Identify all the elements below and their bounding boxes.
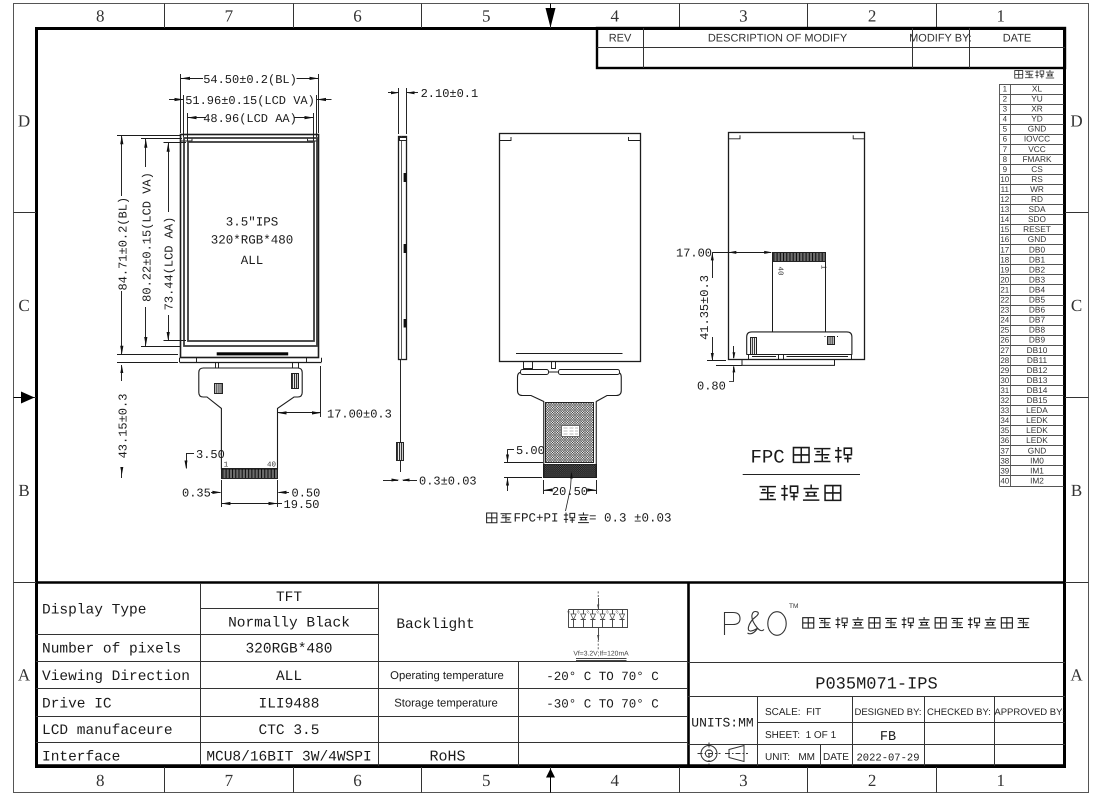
svg-text:Backlight: Backlight [396,617,474,633]
svg-text:21: 21 [1000,285,1009,294]
svg-text:15: 15 [1000,225,1009,234]
svg-text:IM2: IM2 [1030,475,1044,485]
svg-text:UNITS:MM: UNITS:MM [691,716,753,731]
svg-text:2022-07-29: 2022-07-29 [856,753,919,765]
svg-text:1: 1 [996,7,1005,26]
svg-text:-20° C TO 70° C: -20° C TO 70° C [546,670,659,684]
svg-text:17: 17 [1000,245,1009,254]
svg-text:IOVCC: IOVCC [1024,134,1050,144]
svg-text:320*RGB*480: 320*RGB*480 [211,234,294,248]
svg-text:33: 33 [1000,406,1009,415]
svg-text:GND: GND [1028,445,1046,455]
svg-text:GND: GND [1028,234,1046,244]
svg-text:19.50: 19.50 [284,498,320,512]
svg-text:Drive IC: Drive IC [42,697,112,713]
svg-text:DB0: DB0 [1029,244,1046,254]
svg-text:3: 3 [739,7,748,26]
svg-text:24: 24 [1000,316,1009,325]
svg-text:11: 11 [1001,185,1010,194]
svg-text:LCD manufaceure: LCD manufaceure [42,723,173,739]
svg-text:26: 26 [1000,336,1009,345]
svg-text:13: 13 [1000,205,1009,214]
svg-text:320RGB*480: 320RGB*480 [245,642,332,658]
svg-text:39: 39 [1000,466,1009,475]
svg-text:40: 40 [1000,476,1009,485]
svg-text:4: 4 [611,7,620,26]
svg-text:18: 18 [1000,255,1009,264]
svg-text:40: 40 [267,461,277,470]
svg-text:CS: CS [1031,164,1043,174]
svg-text:6: 6 [353,7,362,26]
svg-text:ALL: ALL [276,669,302,685]
svg-text:Viewing Direction: Viewing Direction [42,669,190,685]
svg-text:D: D [18,111,30,130]
svg-text:RD: RD [1031,194,1043,204]
svg-text:DESCRIPTION OF MODIFY: DESCRIPTION OF MODIFY [708,33,848,45]
svg-text:43.15±0.3: 43.15±0.3 [116,394,130,459]
svg-text:DB10: DB10 [1027,345,1048,355]
svg-text:16: 16 [1000,235,1009,244]
svg-text:REV: REV [609,33,632,45]
svg-text:Operating temperature: Operating temperature [390,670,504,682]
svg-text:XL: XL [1032,83,1043,93]
svg-text:6: 6 [1003,135,1008,144]
svg-text:MCU8/16BIT 3W/4WSPI: MCU8/16BIT 3W/4WSPI [206,750,371,766]
svg-text:4: 4 [1003,115,1008,124]
svg-text:41.35±0.3: 41.35±0.3 [698,275,712,340]
svg-text:9: 9 [1003,165,1008,174]
svg-text:A: A [1070,666,1083,685]
svg-text:DB5: DB5 [1029,295,1046,305]
svg-text:C: C [18,296,29,315]
svg-text:LEDA: LEDA [1026,405,1048,415]
svg-text:2: 2 [868,7,877,26]
svg-text:37: 37 [1000,446,1009,455]
svg-text:4: 4 [611,771,620,790]
svg-text:Display Type: Display Type [42,603,146,619]
svg-text:SCALE: FIT: SCALE: FIT [765,707,821,718]
svg-text:3: 3 [1003,105,1008,114]
svg-text:8: 8 [1003,155,1008,164]
svg-text:Storage temperature: Storage temperature [394,698,498,710]
svg-text:ALL: ALL [241,254,264,268]
svg-text:CTC 3.5: CTC 3.5 [259,723,320,739]
svg-text:7: 7 [1003,145,1008,154]
svg-text:Vf=3.2V;If=120mA: Vf=3.2V;If=120mA [573,650,629,657]
svg-text:2: 2 [868,771,877,790]
svg-text:DB6: DB6 [1029,305,1046,315]
svg-text:34: 34 [1000,416,1009,425]
svg-text:FB: FB [880,730,896,745]
svg-text:5.00: 5.00 [516,444,545,458]
svg-text:0.80: 0.80 [697,380,726,394]
svg-text:DB15: DB15 [1027,395,1048,405]
svg-text:RS: RS [1031,174,1043,184]
svg-text:8: 8 [96,7,105,26]
svg-text:A: A [18,666,31,685]
svg-text:FPC+PI: FPC+PI [514,512,559,526]
svg-text:84.71±0.2(BL): 84.71±0.2(BL) [116,197,130,291]
svg-text:APPROVED BY:: APPROVED BY: [994,707,1064,718]
svg-text:DATE: DATE [823,752,849,763]
svg-text:0.35: 0.35 [182,487,211,501]
svg-text:36: 36 [1000,436,1009,445]
svg-text:3.5″IPS: 3.5″IPS [226,216,279,230]
svg-text:22: 22 [1000,296,1009,305]
svg-text:17.00: 17.00 [676,246,712,260]
svg-text:12: 12 [1000,195,1009,204]
svg-text:28: 28 [1000,356,1009,365]
svg-text:SDA: SDA [1028,204,1046,214]
svg-text:29: 29 [1000,366,1009,375]
svg-text:1: 1 [224,462,229,470]
svg-text:14: 14 [1000,215,1009,224]
svg-text:FMARK: FMARK [1022,154,1052,164]
svg-text:XR: XR [1031,104,1043,114]
svg-text:LEDK: LEDK [1026,415,1048,425]
svg-text:DB13: DB13 [1027,375,1048,385]
svg-text:LEDK: LEDK [1026,435,1048,445]
svg-text:20: 20 [1000,275,1009,284]
svg-text:DB12: DB12 [1027,365,1048,375]
svg-text:IM1: IM1 [1030,465,1044,475]
svg-text:DB7: DB7 [1029,315,1046,325]
svg-text:17.00±0.3: 17.00±0.3 [327,407,392,421]
svg-text:UNIT: MM: UNIT: MM [765,752,815,763]
svg-text:SDO: SDO [1028,214,1047,224]
svg-text:-30° C TO 70° C: -30° C TO 70° C [546,698,659,712]
svg-text:25: 25 [1000,326,1009,335]
svg-text:WR: WR [1030,184,1044,194]
svg-text:7: 7 [225,771,234,790]
svg-text:Number of pixels: Number of pixels [42,642,181,658]
svg-text:GND: GND [1028,124,1046,134]
svg-text:CHECKED BY:: CHECKED BY: [927,707,991,718]
svg-text:DB3: DB3 [1029,274,1046,284]
svg-text:VCC: VCC [1028,144,1046,154]
svg-text:32: 32 [1000,396,1009,405]
svg-text:2: 2 [1003,95,1008,104]
svg-text:DB8: DB8 [1029,325,1046,335]
svg-text:P035M071-IPS: P035M071-IPS [815,676,937,695]
svg-text:D: D [1070,111,1082,130]
svg-text:Interface: Interface [42,750,120,766]
svg-text:MODIFY BY:: MODIFY BY: [909,33,972,45]
svg-text:19: 19 [1000,265,1009,274]
svg-text:3.50: 3.50 [196,448,225,462]
svg-text:51.96±0.15(LCD VA): 51.96±0.15(LCD VA) [185,94,315,108]
svg-text:DB4: DB4 [1029,284,1046,294]
svg-text:80.22±0.15(LCD VA): 80.22±0.15(LCD VA) [140,172,154,302]
svg-text:1: 1 [1003,84,1008,93]
svg-text:5: 5 [1003,125,1008,134]
svg-text:27: 27 [1000,346,1009,355]
svg-text:LEDK: LEDK [1026,425,1048,435]
svg-text:DB1: DB1 [1029,254,1046,264]
svg-text:8: 8 [96,771,105,790]
svg-text:B: B [1071,481,1082,500]
svg-text:0.3±0.03: 0.3±0.03 [419,474,477,488]
svg-text:C: C [1071,296,1082,315]
svg-text:= 0.3 ±0.03: = 0.3 ±0.03 [589,512,672,526]
svg-text:30: 30 [1000,376,1009,385]
svg-text:6: 6 [353,771,362,790]
svg-text:TFT: TFT [276,590,302,606]
svg-text:40: 40 [776,266,785,276]
svg-text:DESIGNED BY:: DESIGNED BY: [854,707,921,718]
svg-text:TM: TM [789,603,798,610]
svg-text:5: 5 [482,7,491,26]
svg-text:2.10±0.1: 2.10±0.1 [421,87,479,101]
svg-text:3: 3 [739,771,748,790]
svg-text:73.44(LCD AA): 73.44(LCD AA) [163,217,177,311]
svg-text:RESET: RESET [1023,224,1051,234]
svg-text:54.50±0.2(BL): 54.50±0.2(BL) [203,73,297,87]
svg-text:1: 1 [996,771,1005,790]
svg-text:DB9: DB9 [1029,335,1046,345]
svg-text:35: 35 [1000,426,1009,435]
svg-text:SHEET: 1 OF 1: SHEET: 1 OF 1 [765,730,837,741]
svg-text:B: B [18,481,29,500]
svg-text:23: 23 [1000,306,1009,315]
svg-text:DB11: DB11 [1027,355,1048,365]
svg-text:DATE: DATE [1003,33,1032,45]
svg-text:7: 7 [225,7,234,26]
svg-text:DB14: DB14 [1027,385,1048,395]
svg-text:ILI9488: ILI9488 [259,697,320,713]
svg-text:YD: YD [1031,114,1043,124]
svg-text:10: 10 [1000,175,1009,184]
svg-text:31: 31 [1000,386,1009,395]
svg-text:Normally Black: Normally Black [228,616,350,632]
svg-text:38: 38 [1000,456,1009,465]
svg-text:5: 5 [482,771,491,790]
svg-text:IM0: IM0 [1030,455,1044,465]
svg-text:RoHS: RoHS [429,749,465,766]
svg-text:DB2: DB2 [1029,264,1046,274]
svg-text:YU: YU [1031,94,1043,104]
svg-text:FPC: FPC [751,447,785,469]
svg-text:48.96(LCD AA): 48.96(LCD AA) [203,112,297,126]
